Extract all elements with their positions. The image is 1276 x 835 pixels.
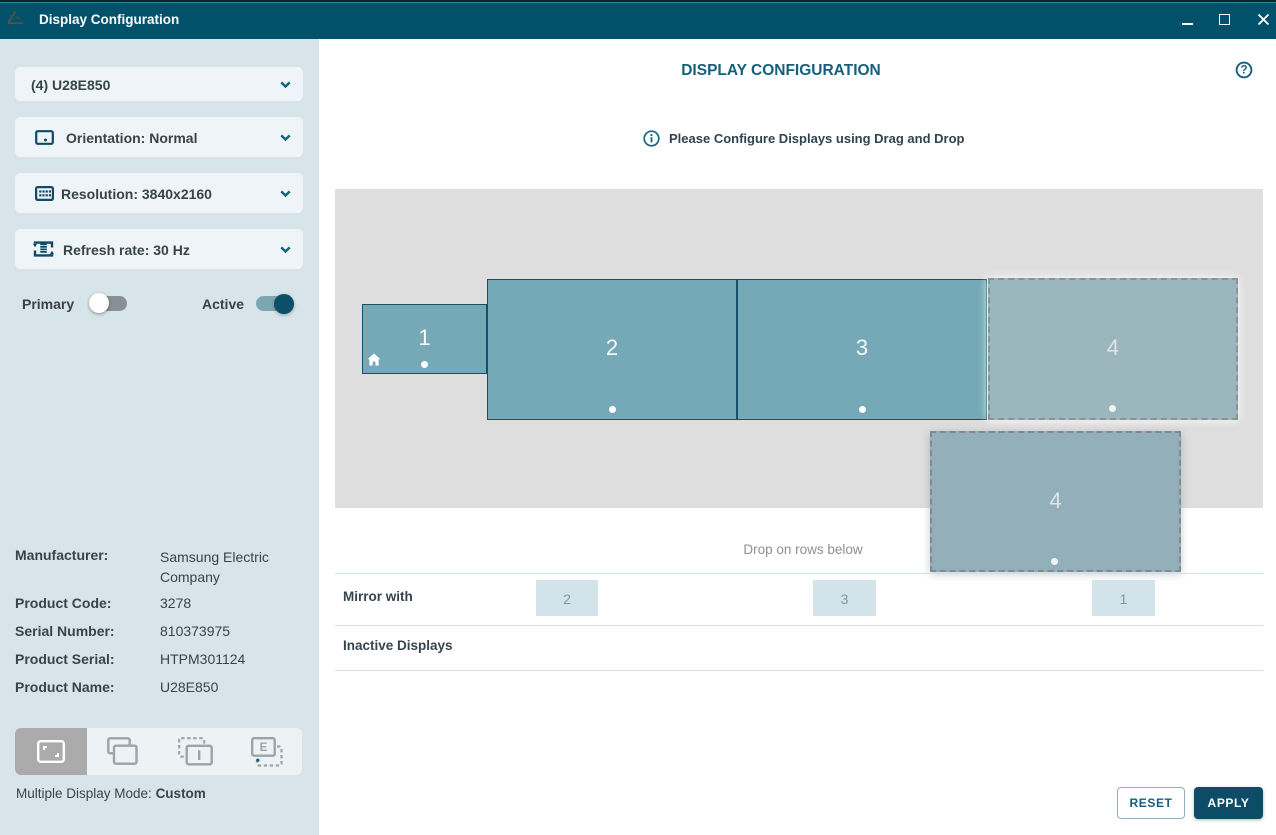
svg-text:E: E xyxy=(260,742,268,754)
svg-text:?: ? xyxy=(1240,65,1247,77)
